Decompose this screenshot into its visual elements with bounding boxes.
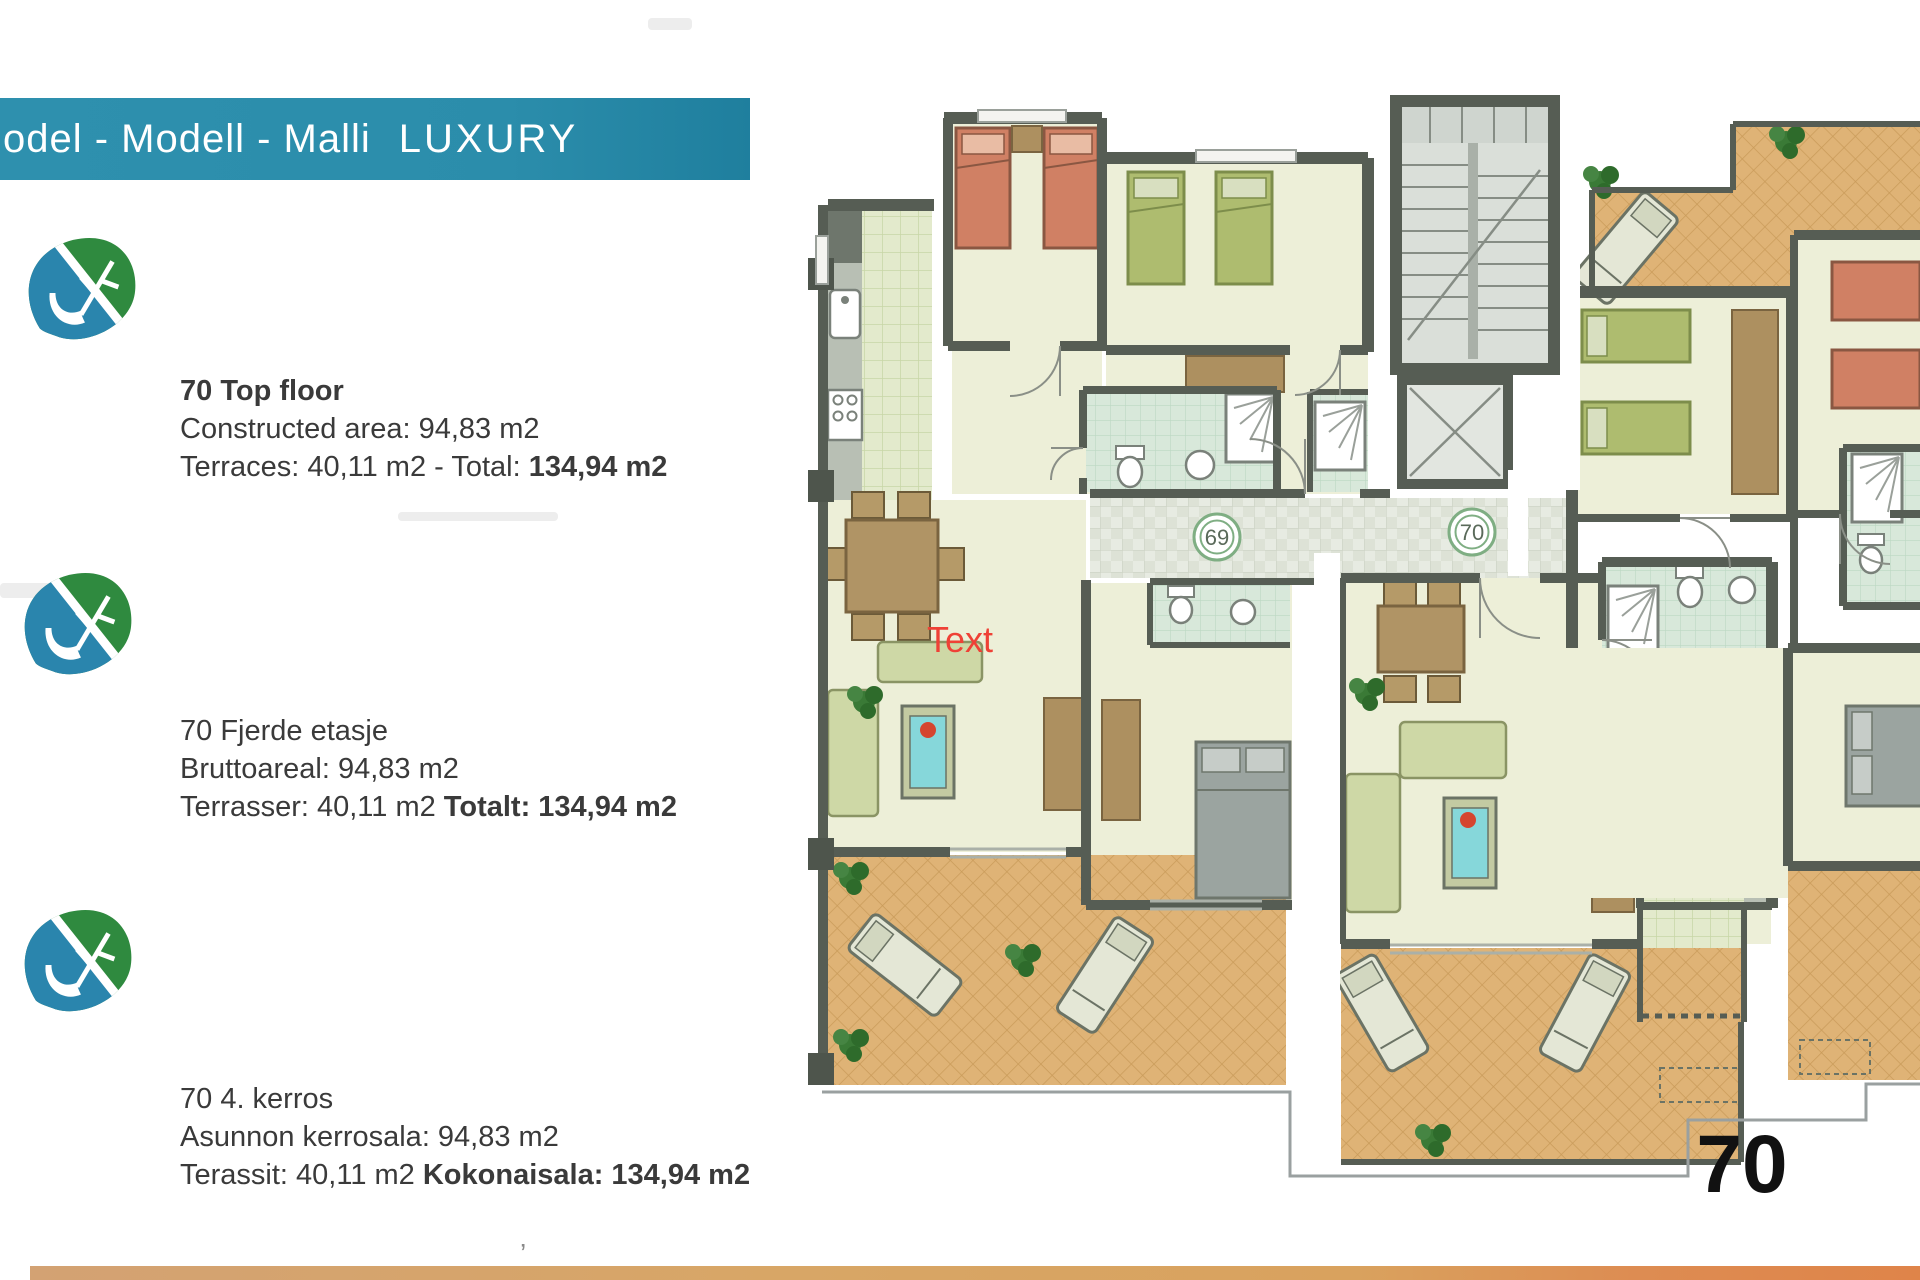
sink-icon <box>1186 451 1214 479</box>
unit-badge-69: 69 <box>1194 514 1240 560</box>
bed-green <box>1216 172 1272 284</box>
wardrobe <box>1102 700 1140 820</box>
toilet-icon <box>1116 446 1144 487</box>
toilet-icon <box>1858 534 1884 573</box>
info-line: Terrasser: 40,11 m2 Totalt: 134,94 m2 <box>180 788 677 826</box>
leaf-logo-icon <box>18 232 148 350</box>
bed-salmon <box>1832 262 1920 320</box>
shower-icon <box>1226 394 1276 462</box>
double-bed-gray <box>1846 706 1920 806</box>
unit-badge-70: 70 <box>1449 509 1495 555</box>
wardrobe <box>1732 310 1778 494</box>
scan-smudge <box>398 512 558 521</box>
model-banner: odel - Modell - Malli LUXURY <box>0 98 750 180</box>
info-block-norwegian: 70 Fjerde etasje Bruttoareal: 94,83 m2 T… <box>180 712 677 826</box>
info-line: Terraces: 40,11 m2 - Total: 134,94 m2 <box>180 448 667 486</box>
leaf-logo-icon <box>14 567 144 685</box>
bed-green <box>1582 402 1690 454</box>
info-block-english: 70 Top floor Constructed area: 94,83 m2 … <box>180 372 667 486</box>
toilet-icon <box>1168 586 1194 623</box>
banner-luxury-text: LUXURY <box>399 117 579 162</box>
floor-plan: 69 70 <box>800 85 1920 1205</box>
info-heading: 70 Fjerde etasje <box>180 712 677 750</box>
info-line: Asunnon kerrosala: 94,83 m2 <box>180 1118 750 1156</box>
plunge-pool <box>902 706 954 798</box>
scan-smudge <box>648 18 692 30</box>
red-annotation: Text <box>927 619 993 660</box>
bed-salmon <box>956 128 1010 248</box>
shower-icon <box>1608 586 1658 654</box>
toilet-icon <box>1676 566 1703 607</box>
sink-icon <box>1231 600 1255 624</box>
info-heading: 70 4. kerros <box>180 1080 750 1118</box>
banner-brand-text: odel - Modell - Malli <box>3 117 371 162</box>
info-block-finnish: 70 4. kerros Asunnon kerrosala: 94,83 m2… <box>180 1080 750 1194</box>
plunge-pool <box>1444 798 1496 888</box>
nightstand <box>1012 126 1042 152</box>
info-heading: 70 Top floor <box>180 372 667 410</box>
sofa <box>1346 774 1400 912</box>
next-page-edge-strip <box>30 1266 1920 1280</box>
bed-salmon <box>1832 350 1920 408</box>
elevator <box>1402 377 1508 487</box>
info-line: Terassit: 40,11 m2 Kokonaisala: 134,94 m… <box>180 1156 750 1194</box>
sink-icon <box>1729 577 1755 603</box>
double-bed-gray <box>1196 742 1290 898</box>
staircase-core <box>1396 101 1554 487</box>
leaf-logo-icon <box>14 904 144 1022</box>
bed-green <box>1128 172 1184 284</box>
svg-text:69: 69 <box>1205 525 1229 550</box>
info-line: Bruttoareal: 94,83 m2 <box>180 750 677 788</box>
big-unit-number: 70 <box>1696 1119 1787 1205</box>
sofa <box>1400 722 1506 778</box>
cabinet <box>1044 698 1082 810</box>
apartment-69 <box>808 110 1390 1085</box>
bed-salmon <box>1044 128 1098 248</box>
shower-icon <box>1315 402 1365 470</box>
svg-text:70: 70 <box>1460 520 1484 545</box>
bed-green <box>1582 310 1690 362</box>
info-line: Constructed area: 94,83 m2 <box>180 410 667 448</box>
